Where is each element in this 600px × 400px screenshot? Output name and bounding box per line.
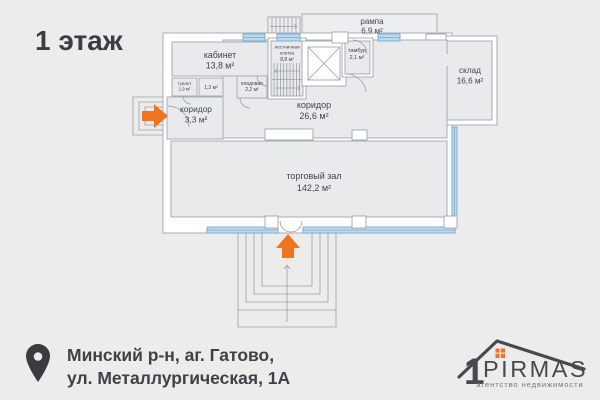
room-label-vestibule: тамбур [348, 48, 366, 54]
page-title: 1 этаж [35, 25, 124, 56]
room-label-sales-hall: торговый зал [286, 171, 341, 181]
top-door-opening [332, 32, 348, 43]
room-area-warehouse: 16,6 м² [457, 77, 484, 86]
room-label-toilet: туалет [178, 81, 192, 86]
room-area-utility: 1,3 м² [204, 85, 218, 91]
room-area-storage: 2,2 м² [245, 87, 259, 93]
screenshot-canvas: кабинет 13,8 м² лестничная клетка 8,8 м²… [0, 0, 600, 400]
address-line-2: ул. Металлургическая, 1А [67, 368, 291, 388]
room-label-ramp: рампа [360, 17, 384, 26]
logo-name: PIRMAS [483, 356, 588, 382]
wall-counter [265, 129, 313, 140]
room-area-ramp: 6,9 м² [361, 27, 383, 36]
wall-pillar [352, 130, 367, 140]
room-label-office: кабинет [204, 50, 236, 60]
logo-tagline: агентство недвижимости [476, 380, 583, 389]
room-area-stairwell: 8,8 м² [280, 57, 294, 63]
room-area-sales-hall: 142,2 м² [297, 183, 331, 193]
room-area-toilet: 1,9 м² [179, 87, 191, 92]
room-label-stairwell-1: лестничная [274, 45, 300, 50]
room-area-corridor-small: 3,3 м² [185, 115, 208, 125]
floor-plan-image: кабинет 13,8 м² лестничная клетка 8,8 м²… [0, 0, 600, 400]
room-area-corridor-main: 26,6 м² [299, 111, 328, 121]
room-label-corridor-main: коридор [297, 100, 331, 110]
location-pin-hole [34, 352, 43, 361]
warehouse-door-gap [442, 54, 449, 66]
address-line-1: Минский р-н, аг. Гатово, [67, 345, 274, 365]
room-label-warehouse: склад [459, 66, 481, 75]
room-area-vestibule: 2,1 м² [349, 55, 364, 61]
room-label-stairwell-2: клетка [280, 51, 295, 56]
room-area-office: 13,8 м² [206, 61, 235, 71]
elevator-shaft [302, 41, 346, 86]
room-label-corridor-small: коридор [180, 104, 212, 114]
